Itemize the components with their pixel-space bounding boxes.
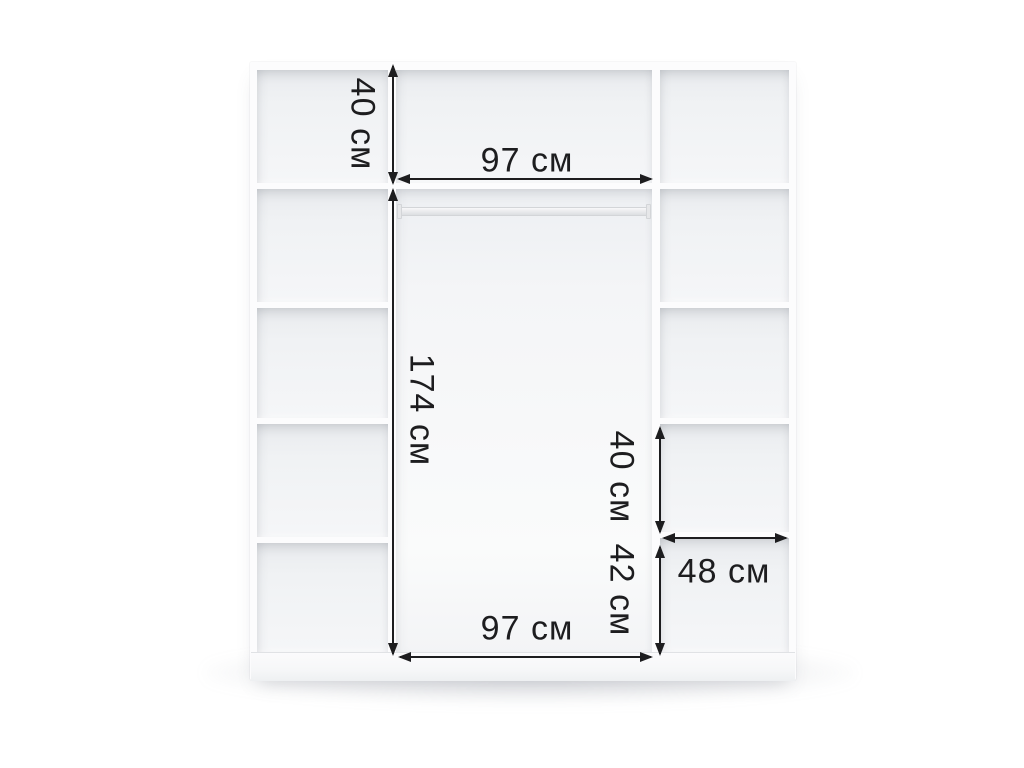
arrowhead-right-icon	[640, 174, 653, 184]
arrowhead-right-icon	[640, 652, 653, 662]
arrowhead-left-icon	[662, 533, 675, 543]
shelf-cell	[257, 308, 388, 418]
shelf-cell	[660, 308, 789, 418]
dimension-label: 40 см	[343, 78, 382, 171]
arrowhead-up-icon	[388, 64, 398, 77]
dimension-label: 40 см	[602, 431, 641, 524]
dimension-line	[400, 656, 651, 658]
shelf-cell	[257, 543, 388, 652]
shelf-cell	[257, 189, 388, 302]
arrowhead-left-icon	[398, 652, 411, 662]
dimension-line	[659, 547, 661, 654]
dimension-line	[392, 66, 394, 183]
arrowhead-left-icon	[397, 174, 410, 184]
dimension-line	[659, 428, 661, 532]
arrowhead-right-icon	[775, 533, 788, 543]
shelf-cell	[257, 424, 388, 537]
arrowhead-down-icon	[655, 643, 665, 656]
dimension-label: 97 см	[481, 610, 574, 649]
shelf-cell	[660, 70, 789, 183]
shelf-cell	[660, 189, 789, 302]
rod-bracket	[646, 204, 651, 219]
hanging-rod	[397, 207, 651, 216]
arrowhead-up-icon	[655, 426, 665, 439]
arrowhead-down-icon	[388, 643, 398, 656]
dimension-label: 42 см	[602, 544, 641, 637]
dimension-label: 174 см	[402, 354, 441, 467]
rod-bracket	[397, 204, 402, 219]
arrowhead-up-icon	[388, 188, 398, 201]
wardrobe-diagram: 40 см 97 см 174 см 40 см 48 см 42 см	[0, 0, 1024, 768]
shelf-cell	[660, 424, 789, 532]
dimension-label: 97 см	[481, 142, 574, 181]
arrowhead-up-icon	[655, 545, 665, 558]
dimension-line	[664, 537, 786, 539]
dimension-line	[392, 190, 394, 654]
dimension-label: 48 см	[678, 553, 771, 592]
